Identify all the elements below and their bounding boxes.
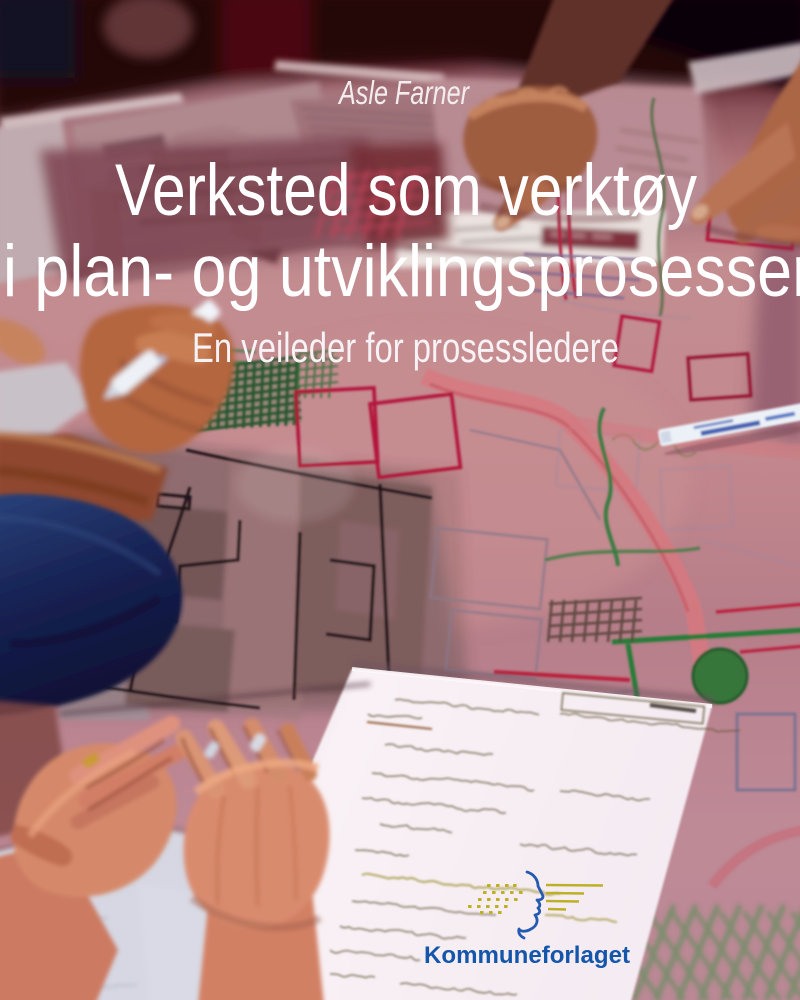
svg-text:Kommuneforlaget: Kommuneforlaget [424, 942, 630, 969]
svg-text:Verksted som verktøy: Verksted som verktøy [115, 150, 697, 231]
svg-text:En veileder for prosessledere: En veileder for prosessledere [192, 324, 619, 371]
svg-text:i plan- og utviklingsprosesser: i plan- og utviklingsprosesser [3, 231, 800, 312]
svg-text:Asle Farner: Asle Farner [337, 74, 470, 111]
